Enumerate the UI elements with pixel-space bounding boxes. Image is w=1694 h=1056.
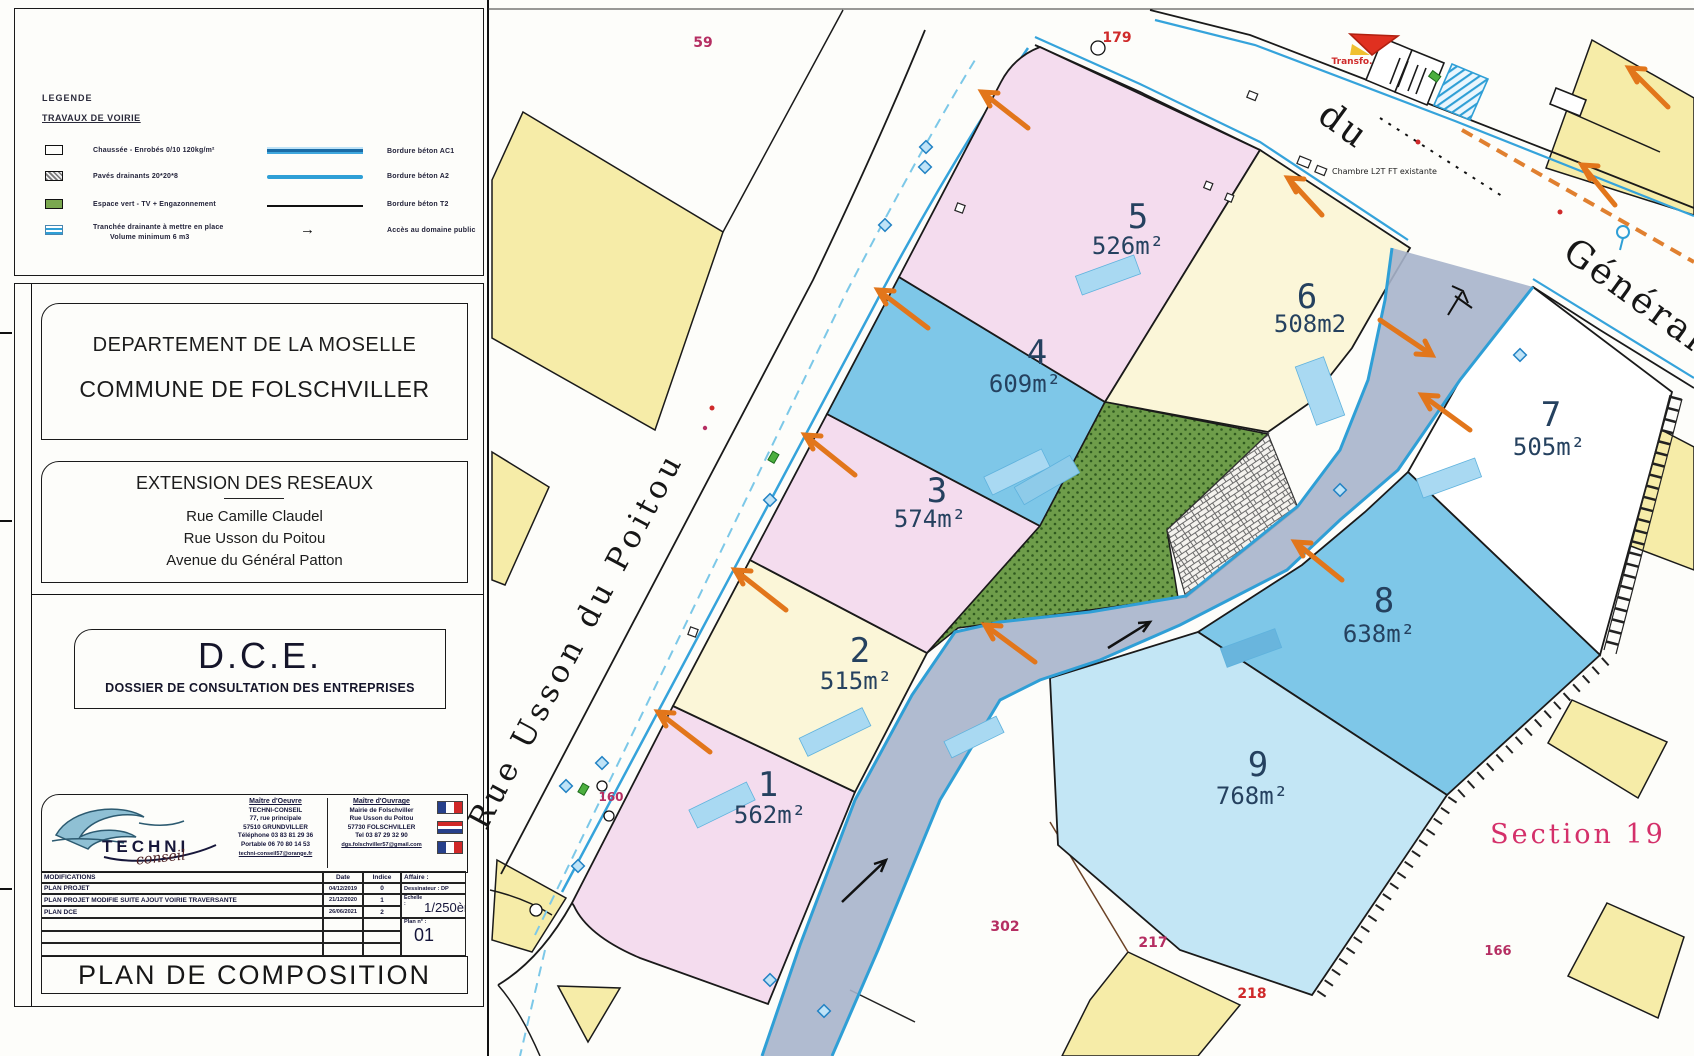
plan-de-composition-sheet: LEGENDE TRAVAUX DE VOIRIE Chaussée - Enr… [0,0,1694,1056]
parcel-number: 7 [1541,395,1561,435]
plot-number: 179 [1102,30,1131,46]
transfo-label: Transfo. [1332,57,1373,67]
plot-number: 217 [1138,935,1167,951]
parcel-area: 526m² [1092,232,1164,260]
parcel-area: 515m² [820,667,892,695]
avenue-label-du: du [1311,94,1377,158]
parcel-area: 562m² [734,801,806,829]
parcel-area: 508m2 [1274,310,1346,338]
chambre-label: Chambre L2T FT existante [1332,167,1437,176]
parcel-area: 574m² [894,505,966,533]
section-label: Section 19 [1490,819,1666,850]
plot-number: 160 [598,790,623,804]
plot-number: 166 [1484,944,1511,959]
parcel-area: 768m² [1216,782,1288,810]
parcel-number: 8 [1374,581,1394,621]
plot-number: 302 [990,919,1019,935]
hydrant-circle-icon [1617,226,1629,250]
parcel-area: 505m² [1513,433,1585,461]
blue-hatch-driveway [1434,64,1488,120]
parcel-area: 609m² [989,370,1061,398]
composition-map: 1 562m² 2 515m² 3 574m² 4 609m² 5 526m² … [0,0,1694,1056]
plot-number: 59 [693,35,712,51]
existing-buildings [1350,34,1586,120]
parcel-number: 5 [1128,197,1148,237]
parcel-number: 1 [758,765,778,805]
parcel-number: 4 [1027,333,1047,373]
plot-number: 218 [1237,986,1266,1002]
parcel-number: 2 [850,631,870,671]
parcel-number: 9 [1248,745,1268,785]
parcel-area: 638m² [1343,620,1415,648]
